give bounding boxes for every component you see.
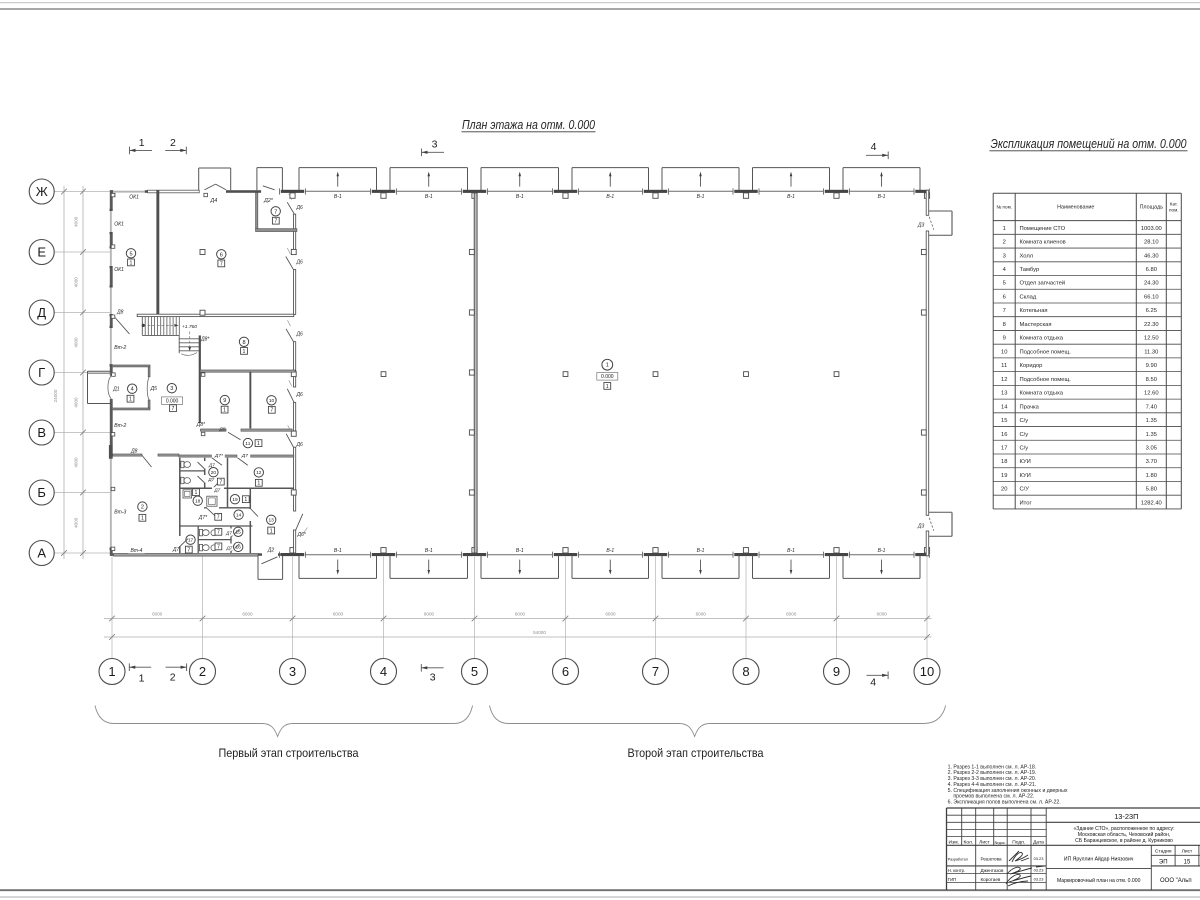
svg-text:Итог: Итог [1020,500,1032,506]
svg-text:14: 14 [1001,404,1008,410]
svg-text:Б: Б [37,485,46,500]
svg-text:6000: 6000 [424,611,435,616]
svg-text:Первый этап строительства: Первый этап строительства [219,746,359,760]
svg-text:ЭП: ЭП [1159,860,1168,866]
svg-text:План этажа на отм. 0.000: План этажа на отм. 0.000 [462,117,596,132]
svg-text:Прачка: Прачка [1020,404,1040,410]
svg-text:С/у: С/у [1020,418,1029,424]
svg-text:9: 9 [833,664,840,679]
svg-text:1: 1 [141,516,144,522]
svg-text:4000: 4000 [74,517,79,528]
svg-text:С/у: С/у [1020,445,1029,451]
svg-text:03.23: 03.23 [1034,856,1044,861]
svg-text:ГИП: ГИП [948,877,956,882]
svg-text:Г: Г [38,365,45,380]
svg-text:7: 7 [187,547,190,553]
svg-text:1282.40: 1282.40 [1141,500,1162,506]
svg-text:5: 5 [1003,281,1006,287]
svg-text:1: 1 [223,407,226,413]
svg-text:24000: 24000 [53,389,58,402]
svg-text:10: 10 [1001,349,1007,355]
svg-text:11: 11 [1001,363,1007,369]
svg-text:15: 15 [236,530,242,536]
svg-text:19: 19 [1001,473,1007,479]
svg-text:Д2: Д2 [267,548,275,554]
svg-text:Д6: Д6 [296,331,304,337]
svg-text:17: 17 [1001,445,1007,451]
svg-text:7: 7 [217,515,220,521]
svg-text:5: 5 [471,664,478,679]
svg-text:66.10: 66.10 [1144,294,1159,300]
svg-text:15: 15 [1184,860,1191,866]
svg-text:17: 17 [188,537,194,543]
svg-text:12: 12 [1001,377,1007,383]
svg-text:Д6: Д6 [296,205,304,211]
svg-text:24.30: 24.30 [1144,281,1159,287]
svg-text:4000: 4000 [74,337,79,348]
svg-text:1: 1 [108,664,115,679]
svg-text:6.80: 6.80 [1146,267,1157,273]
svg-text:8: 8 [1003,322,1006,328]
svg-text:ООО "Альп: ООО "Альп [1160,878,1192,884]
svg-text:3: 3 [432,139,438,151]
svg-text:1: 1 [606,384,609,390]
svg-text:1: 1 [195,490,198,496]
svg-text:11.30: 11.30 [1144,349,1158,355]
svg-text:2: 2 [141,505,144,511]
svg-text:В: В [37,425,46,440]
svg-text:В-1: В-1 [334,194,342,200]
svg-text:Дата: Дата [1033,840,1044,846]
svg-text:В-1: В-1 [787,194,795,200]
svg-text:6000: 6000 [605,611,616,616]
svg-text:9: 9 [1003,336,1006,342]
svg-text:Склад: Склад [1020,294,1037,300]
svg-text:1.35: 1.35 [1146,418,1157,424]
svg-text:Мастерская: Мастерская [1020,322,1052,328]
svg-text:13: 13 [269,518,275,524]
svg-text:В-1: В-1 [516,548,524,554]
svg-text:Д6: Д6 [296,442,304,448]
svg-text:Кат.: Кат. [1170,202,1178,207]
svg-text:Холл: Холл [1020,253,1034,259]
svg-text:Экспликация помещений на отм.: Экспликация помещений на отм. 0.000 [991,137,1187,151]
svg-text:В-1: В-1 [787,548,795,554]
svg-text:3: 3 [430,671,436,683]
svg-text:В-1: В-1 [516,194,524,200]
svg-text:Д1: Д1 [112,387,120,393]
svg-text:В-1: В-1 [425,194,433,200]
svg-text:5: 5 [129,251,132,257]
svg-text:Д7: Д7 [172,547,180,553]
svg-text:КУИ: КУИ [1020,459,1031,465]
svg-text:Д: Д [37,305,46,320]
svg-text:Д3: Д3 [917,222,925,228]
svg-text:10: 10 [920,664,934,679]
svg-text:Помещение СТО: Помещение СТО [1020,226,1066,232]
svg-text:Кол.: Кол. [964,840,974,846]
svg-text:Стадия: Стадия [1155,849,1172,855]
svg-text:Д8*: Д8* [196,422,206,428]
svg-text:Коротаев: Коротаев [981,877,1001,882]
svg-text:Д7: Д7 [241,453,248,459]
svg-text:Подп.: Подп. [1012,840,1025,846]
svg-text:1: 1 [130,260,133,266]
svg-text:13-23П: 13-23П [1114,812,1138,821]
svg-text:+1.760: +1.760 [182,324,197,330]
svg-text:Тамбур: Тамбур [1020,267,1040,273]
svg-text:4: 4 [871,141,877,153]
svg-text:1003.00: 1003.00 [1141,226,1162,232]
svg-text:3: 3 [170,386,173,392]
svg-text:6000: 6000 [515,611,526,616]
svg-text:Д7: Д7 [225,545,232,550]
svg-text:1: 1 [257,441,260,447]
svg-text:2: 2 [199,664,206,679]
svg-text:Площадь: Площадь [1140,205,1164,211]
svg-text:19: 19 [232,497,238,503]
svg-text:7: 7 [274,219,277,225]
svg-text:1: 1 [139,673,145,685]
svg-text:Котельная: Котельная [1020,308,1048,314]
svg-text:9: 9 [223,398,226,404]
svg-text:Д7*: Д7* [214,453,223,459]
svg-text:03.23: 03.23 [1034,877,1044,882]
svg-text:20: 20 [211,470,217,476]
svg-text:№док.: №док. [995,841,1006,845]
svg-text:4000: 4000 [74,397,79,408]
svg-text:В-1: В-1 [697,548,705,554]
svg-text:6000: 6000 [152,611,163,616]
svg-text:16: 16 [1001,432,1007,438]
svg-text:18: 18 [1001,459,1007,465]
svg-text:22.30: 22.30 [1144,322,1159,328]
svg-text:8.50: 8.50 [1146,377,1157,383]
svg-text:13: 13 [1001,391,1007,397]
svg-text:1: 1 [1003,226,1006,232]
svg-text:Вт-4: Вт-4 [131,548,143,554]
svg-text:6000: 6000 [333,611,344,616]
svg-text:7: 7 [172,406,175,412]
svg-text:А: А [37,546,46,561]
svg-text:Д7: Д7 [208,463,215,468]
svg-text:8: 8 [742,664,749,679]
svg-text:В-1: В-1 [697,194,705,200]
svg-text:3: 3 [1003,253,1006,259]
svg-text:8: 8 [242,340,245,346]
svg-text:ОК1: ОК1 [129,195,139,201]
svg-text:Д7*: Д7* [198,515,208,521]
svg-text:7: 7 [219,479,222,485]
svg-text:4000: 4000 [74,277,79,288]
svg-text:11: 11 [245,441,250,447]
svg-text:С/у: С/у [1020,432,1029,438]
svg-text:КУИ: КУИ [1020,473,1031,479]
svg-text:№ пом.: № пом. [996,205,1012,210]
svg-text:Д3: Д3 [917,523,925,529]
svg-text:Подсобное помещ.: Подсобное помещ. [1020,349,1072,355]
svg-text:В-1: В-1 [425,548,433,554]
svg-text:Д6: Д6 [296,260,304,266]
svg-text:1: 1 [244,497,247,503]
svg-text:6000: 6000 [696,611,707,616]
svg-text:Комната клиенов: Комната клиенов [1020,240,1066,246]
svg-text:Решетова: Решетова [981,856,1003,861]
svg-text:0.000: 0.000 [601,374,614,380]
svg-text:4000: 4000 [74,457,79,468]
svg-text:6000: 6000 [877,611,888,616]
svg-text:Изм.: Изм. [949,840,959,846]
svg-text:7: 7 [270,408,273,414]
svg-text:6000: 6000 [786,611,797,616]
svg-text:6: 6 [1003,294,1006,300]
svg-text:2: 2 [170,137,176,149]
svg-text:1: 1 [606,363,609,369]
svg-text:Вт-2: Вт-2 [114,345,126,351]
svg-text:28.10: 28.10 [1144,240,1159,246]
svg-text:1: 1 [257,481,260,487]
svg-text:4: 4 [870,677,876,689]
svg-text:В-1: В-1 [606,194,614,200]
svg-text:В-1: В-1 [878,194,886,200]
svg-text:6.25: 6.25 [1146,308,1157,314]
svg-text:4: 4 [131,387,134,393]
svg-text:Наименование: Наименование [1057,205,1094,211]
svg-text:Отдел запчастей: Отдел запчастей [1020,280,1066,287]
svg-text:9.90: 9.90 [1146,363,1157,369]
svg-text:0.000: 0.000 [166,399,179,405]
svg-text:Джентазов: Джентазов [981,868,1004,873]
svg-text:20: 20 [1001,487,1007,493]
svg-text:ИП Яруллин Айдар Ниязович: ИП Яруллин Айдар Ниязович [1064,855,1134,862]
svg-text:15: 15 [1001,418,1007,424]
svg-text:7: 7 [217,530,220,536]
svg-text:В-1: В-1 [334,548,342,554]
svg-text:ОК1: ОК1 [114,222,124,228]
svg-text:12: 12 [256,470,262,476]
svg-text:7: 7 [274,209,277,215]
svg-text:«Здание СТО», расположенное по: «Здание СТО», расположенное по адресу: [1073,826,1174,832]
svg-text:1: 1 [129,397,132,403]
svg-text:Д8: Д8 [218,426,225,432]
svg-text:7.40: 7.40 [1146,404,1157,410]
svg-text:2: 2 [170,671,176,683]
svg-text:12.50: 12.50 [1144,336,1159,342]
svg-text:6: 6 [220,252,223,258]
svg-text:5.80: 5.80 [1146,487,1157,493]
svg-text:СБ Баранцевское, в районе д. К: СБ Баранцевское, в районе д. Курниково [1075,837,1173,844]
svg-text:03.23: 03.23 [1034,868,1044,873]
svg-text:Д7: Д7 [207,477,214,482]
svg-text:16: 16 [236,545,242,551]
svg-text:54000: 54000 [533,630,546,635]
svg-text:Д7: Д7 [225,531,232,536]
svg-text:Второй этап строительства: Второй этап строительства [628,746,764,760]
svg-text:Комната отдыха: Комната отдыха [1020,391,1064,397]
svg-text:1.35: 1.35 [1146,432,1157,438]
svg-text:Подсобное помещ.: Подсобное помещ. [1020,377,1072,383]
svg-text:4: 4 [380,664,387,679]
svg-text:10: 10 [269,398,275,404]
svg-text:1.80: 1.80 [1146,473,1157,479]
svg-text:7: 7 [220,261,223,267]
svg-text:18: 18 [195,498,201,504]
svg-text:7: 7 [217,544,220,550]
svg-text:6000: 6000 [242,611,253,616]
svg-text:7: 7 [652,664,659,679]
svg-text:Комната отдыха: Комната отдыха [1020,336,1064,342]
svg-text:3.70: 3.70 [1146,459,1157,465]
svg-text:Д2*: Д2* [263,198,274,204]
svg-text:6: 6 [562,664,569,679]
svg-text:Вт-2: Вт-2 [114,423,126,429]
svg-text:Коридор: Коридор [1020,363,1043,369]
svg-text:1: 1 [270,528,273,534]
svg-text:В-1: В-1 [878,548,886,554]
svg-text:6. Экспликация полов выполнена: 6. Экспликация полов выполнена см. л. АР… [948,799,1061,805]
svg-text:2: 2 [1003,240,1006,246]
svg-text:В-1: В-1 [606,548,614,554]
svg-text:Разработал: Разработал [948,857,968,861]
svg-text:14: 14 [236,512,242,518]
svg-text:7: 7 [1003,308,1006,314]
svg-text:3: 3 [289,664,296,679]
svg-text:Московская область, Чеховский: Московская область, Чеховский район, [1078,831,1171,838]
svg-text:3.05: 3.05 [1146,445,1157,451]
svg-text:Лист: Лист [979,840,990,846]
svg-text:Е: Е [37,245,46,260]
svg-text:46.30: 46.30 [1144,253,1159,259]
svg-text:4000: 4000 [74,216,79,227]
svg-text:Вт-3: Вт-3 [114,509,126,515]
svg-text:1: 1 [139,137,145,149]
svg-text:Д8*: Д8* [200,337,210,343]
svg-text:ОК1: ОК1 [114,267,124,273]
svg-text:Д6: Д6 [296,392,304,398]
svg-text:Лист: Лист [1182,849,1193,855]
svg-text:С/У: С/У [1020,487,1030,493]
svg-text:Д4: Д4 [210,198,218,204]
svg-text:Маркировочный план на отм. 0.0: Маркировочный план на отм. 0.000 [1057,877,1141,884]
svg-text:Д8: Д8 [130,449,138,455]
svg-text:Д7: Д7 [213,487,220,492]
svg-text:Д5: Д5 [150,386,158,392]
svg-text:пом.: пом. [1169,208,1178,213]
svg-text:Д8: Д8 [116,309,124,315]
svg-text:Ж: Ж [36,184,48,199]
svg-text:Н. контр.: Н. контр. [948,868,965,873]
svg-text:12.60: 12.60 [1144,391,1159,397]
svg-text:1: 1 [243,349,246,355]
svg-text:Д6*: Д6* [297,532,307,538]
